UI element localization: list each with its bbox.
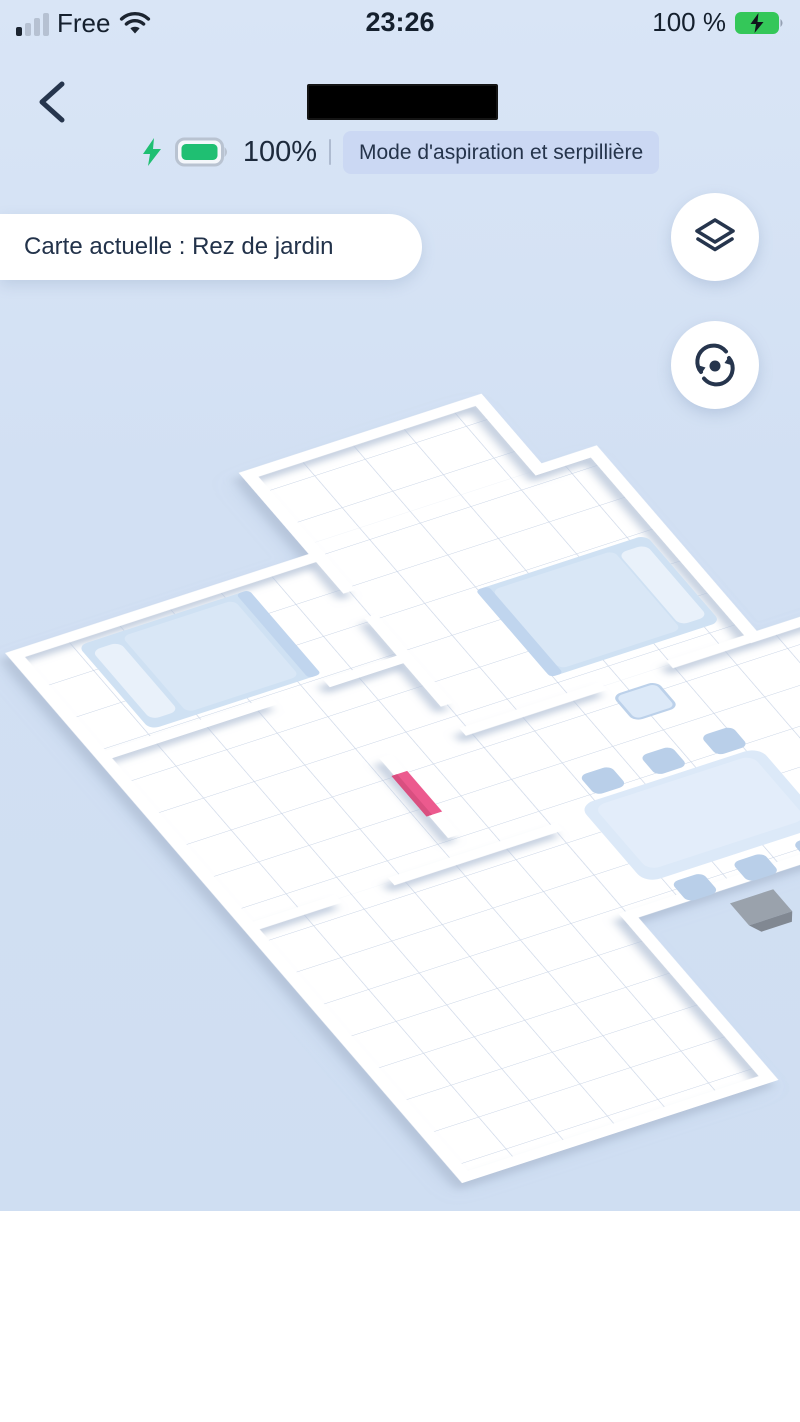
- robot-battery-icon: [175, 136, 231, 168]
- robot-battery-percent: 100%: [243, 136, 317, 169]
- robot-status-row: 100% Mode d'aspiration et serpillière: [0, 128, 800, 176]
- map-rotate-button[interactable]: [671, 321, 759, 409]
- back-button[interactable]: [30, 78, 74, 126]
- app-screen: Free 23:26 100 %: [0, 0, 800, 1422]
- divider: [329, 139, 331, 165]
- charging-bolt-icon: [141, 137, 163, 167]
- rotate-map-icon: [691, 341, 739, 389]
- current-map-pill: Carte actuelle : Rez de jardin: [0, 214, 422, 280]
- chevron-left-icon: [30, 78, 74, 126]
- bottom-action-bar: Meubles Nettoyage sous les meubles: [0, 1211, 800, 1422]
- layers-icon: [691, 213, 739, 261]
- map-layers-button[interactable]: [671, 193, 759, 281]
- status-battery-charging-icon: [734, 10, 786, 36]
- floor-map-3d[interactable]: [0, 0, 800, 1211]
- device-name-redacted: [307, 84, 498, 120]
- robot-dock: [730, 889, 799, 933]
- status-battery-percent: 100 %: [652, 7, 726, 38]
- cleaning-mode-badge: Mode d'aspiration et serpillière: [343, 131, 659, 174]
- status-bar: Free 23:26 100 %: [0, 0, 800, 48]
